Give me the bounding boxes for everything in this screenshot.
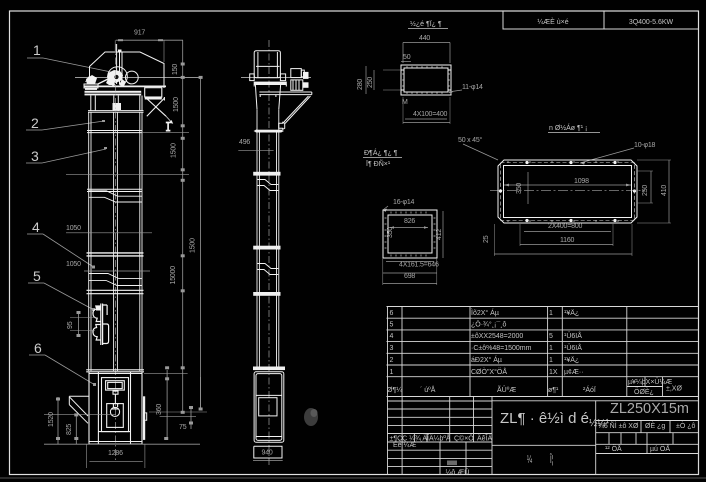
svg-text:µ¢Æ··: µ¢Æ·· bbox=[564, 369, 584, 376]
svg-text:4X161.5=646: 4X161.5=646 bbox=[399, 262, 439, 269]
svg-text:±,XØ: ±,XØ bbox=[666, 386, 682, 393]
svg-text:150: 150 bbox=[172, 64, 179, 75]
svg-text:²ÁóÏ: ²ÁóÏ bbox=[583, 385, 596, 394]
svg-text:1098: 1098 bbox=[574, 178, 589, 185]
svg-text:1: 1 bbox=[549, 357, 553, 364]
svg-text:16-φ14: 16-φ14 bbox=[393, 199, 415, 206]
svg-text:1X: 1X bbox=[549, 369, 558, 376]
svg-text:1160: 1160 bbox=[560, 237, 575, 244]
svg-text:Ï¶ ÐÑ×¹: Ï¶ ÐÑ×¹ bbox=[366, 159, 391, 168]
svg-text:3Q400-5.6KW: 3Q400-5.6KW bbox=[629, 19, 674, 26]
svg-text:ÄêÎÄ: ÄêÎÄ bbox=[477, 433, 493, 442]
svg-text:¹² ÖÅ: ¹² ÖÅ bbox=[605, 444, 622, 453]
svg-text:Î¦: Î¦ bbox=[549, 453, 553, 465]
svg-text:Ìõ2X° Áµ: Ìõ2X° Áµ bbox=[471, 308, 499, 317]
svg-text:¹¥Ä¿: ¹¥Ä¿ bbox=[564, 356, 579, 364]
svg-text:280: 280 bbox=[357, 79, 364, 90]
svg-text:25: 25 bbox=[483, 235, 490, 243]
svg-text:¼: ¼ bbox=[527, 453, 532, 465]
svg-text:1286: 1286 bbox=[108, 450, 123, 457]
svg-text:½¿é ¶Ï¿ ¶: ½¿é ¶Ï¿ ¶ bbox=[410, 20, 442, 28]
svg-text:1050: 1050 bbox=[66, 225, 81, 232]
svg-text:5: 5 bbox=[33, 268, 41, 284]
svg-text:1: 1 bbox=[549, 345, 553, 352]
svg-text:1: 1 bbox=[549, 310, 553, 317]
svg-text:3: 3 bbox=[31, 148, 39, 164]
svg-text:360: 360 bbox=[156, 404, 163, 415]
svg-text:412: 412 bbox=[436, 229, 443, 240]
svg-text:410: 410 bbox=[661, 185, 668, 196]
svg-text:5: 5 bbox=[390, 322, 394, 329]
svg-text:2: 2 bbox=[31, 115, 39, 131]
svg-text:¼ÆÈ ù×é: ¼ÆÈ ù×é bbox=[537, 17, 568, 26]
svg-text:1: 1 bbox=[390, 369, 394, 376]
svg-text:1500: 1500 bbox=[173, 97, 180, 112]
svg-text:1: 1 bbox=[33, 42, 41, 58]
svg-text:350: 350 bbox=[516, 183, 523, 194]
svg-text:Éè ¼Æ: Éè ¼Æ bbox=[393, 440, 416, 449]
svg-text:´ úºÅ: ´ úºÅ bbox=[420, 385, 436, 394]
svg-text:440: 440 bbox=[419, 35, 430, 42]
svg-text:95: 95 bbox=[67, 321, 74, 329]
svg-text:·C±ô%48=1500mm: ·C±ô%48=1500mm bbox=[471, 345, 532, 352]
svg-text:826: 826 bbox=[404, 218, 415, 225]
svg-text:¼6 ÑÌ ±ô XØ: ¼6 ÑÌ ±ô XØ bbox=[598, 421, 639, 430]
svg-text:496: 496 bbox=[239, 139, 250, 146]
svg-text:250: 250 bbox=[367, 77, 374, 88]
svg-text:±Ò ¿ô: ±Ò ¿ô bbox=[676, 421, 696, 430]
svg-text:825: 825 bbox=[66, 424, 73, 435]
svg-text:698: 698 bbox=[404, 273, 415, 280]
svg-text:6: 6 bbox=[390, 310, 394, 317]
svg-text:¸ÄÎÄ¼þºÅ: ¸ÄÎÄ¼þºÅ bbox=[420, 433, 451, 442]
svg-text:¹¥Ä¿: ¹¥Ä¿ bbox=[564, 309, 579, 317]
svg-text:¹Ü6IÅ: ¹Ü6IÅ bbox=[564, 331, 582, 340]
svg-text:75: 75 bbox=[179, 424, 187, 431]
svg-text:¹Ü6IÅ: ¹Ü6IÅ bbox=[564, 343, 582, 352]
svg-text:CØÒ"X°ÖÅ: CØÒ"X°ÖÅ bbox=[471, 367, 507, 376]
svg-text:ZL250X15m: ZL250X15m bbox=[610, 401, 689, 417]
svg-text:ø¶¹: ø¶¹ bbox=[548, 387, 559, 394]
svg-text:4X100=400: 4X100=400 bbox=[413, 111, 448, 118]
svg-text:1050: 1050 bbox=[66, 261, 81, 268]
svg-text:1500: 1500 bbox=[171, 143, 178, 158]
svg-text:Ç©×Ö: Ç©×Ö bbox=[454, 434, 474, 442]
svg-text:4: 4 bbox=[32, 219, 40, 235]
svg-text:3: 3 bbox=[390, 345, 394, 352]
svg-text:15000: 15000 bbox=[170, 266, 177, 285]
svg-text:±ôXX2548=2000: ±ôXX2548=2000 bbox=[471, 333, 523, 340]
svg-text:¼ô ÆÛ: ¼ô ÆÛ bbox=[446, 467, 470, 476]
svg-text:ÖØÈ¿: ÖØÈ¿ bbox=[634, 387, 654, 396]
svg-text:1500: 1500 bbox=[190, 238, 197, 253]
svg-text:ØÈ ¿g: ØÈ ¿g bbox=[645, 421, 665, 430]
svg-text:940: 940 bbox=[262, 450, 273, 457]
svg-text:250: 250 bbox=[642, 185, 649, 196]
svg-text:¿Ö·¾°¸¡¯¸ô: ¿Ö·¾°¸¡¯¸ô bbox=[471, 321, 507, 329]
svg-text:n Ø½Áø ¶¹ ¡: n Ø½Áø ¶¹ ¡ bbox=[549, 123, 587, 132]
svg-text:11-φ14: 11-φ14 bbox=[462, 84, 483, 91]
svg-text:917: 917 bbox=[134, 30, 145, 37]
svg-text:4: 4 bbox=[390, 333, 394, 340]
svg-text:6: 6 bbox=[34, 340, 42, 356]
svg-text:350: 350 bbox=[387, 227, 394, 238]
svg-text:50 x 45°: 50 x 45° bbox=[458, 136, 483, 144]
svg-text:5: 5 bbox=[549, 333, 553, 340]
svg-text:2X400=800: 2X400=800 bbox=[548, 223, 583, 230]
svg-text:áÐ2X° Áµ: áÐ2X° Áµ bbox=[471, 355, 502, 364]
svg-text:10-φ18: 10-φ18 bbox=[634, 142, 656, 149]
svg-text:2: 2 bbox=[390, 357, 394, 364]
svg-text:50: 50 bbox=[403, 54, 411, 61]
svg-text:Ø¶¼: Ø¶¼ bbox=[387, 387, 402, 394]
svg-text:ÃÛºÆ: ÃÛºÆ bbox=[497, 385, 516, 394]
svg-text:Ð¶Á¿ ¶¿ ¶: Ð¶Á¿ ¶¿ ¶ bbox=[364, 148, 398, 157]
svg-text:µú ÖÅ: µú ÖÅ bbox=[650, 444, 670, 453]
